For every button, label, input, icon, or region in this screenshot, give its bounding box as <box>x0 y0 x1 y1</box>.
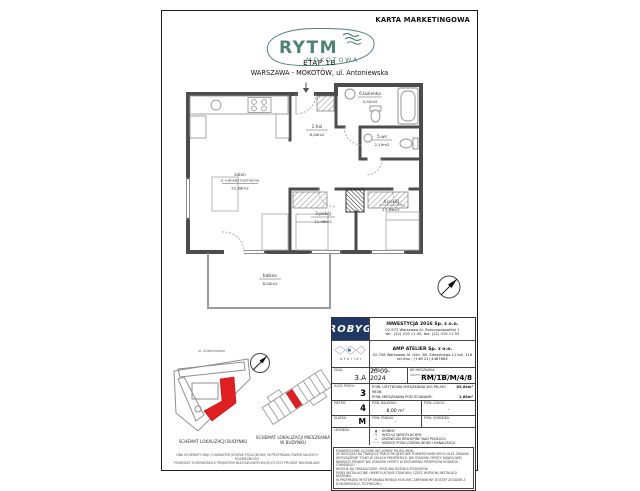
floor-plan: 1.hol 8,00m2 salon 2.+aneks kuchenny 22,… <box>170 82 468 314</box>
svg-text:22,68m2: 22,68m2 <box>231 186 249 191</box>
label-hol: 1.hol <box>312 124 323 130</box>
apartment-location-schematic <box>260 361 334 433</box>
door-swings <box>222 94 410 252</box>
apartment-number: RM/1B/M/4/8 <box>421 373 472 382</box>
location-label: WARSZAWA - MOKOTÓW, ul. Antoniewska <box>162 69 477 77</box>
entrance-arrow-icon <box>303 83 309 94</box>
page: { "header": { "doc_type": "KARTA MARKETI… <box>0 0 640 480</box>
robyg-logo: ROBYG <box>332 318 370 340</box>
etap-label: ETAP 1B <box>162 59 477 67</box>
ogrodek-cell: POW. OGRÓDKA: - <box>422 416 475 427</box>
klatka-cell: KLATKA: M <box>332 416 370 427</box>
installation-shaft <box>346 189 364 212</box>
data-cell: DATA: 20-09-2024 <box>370 368 408 383</box>
developer-info: INWESTYCJA 2016 Sp. z o.o. 02-972 Warsza… <box>370 318 475 340</box>
balkon-value: 8,00 m² <box>370 409 421 414</box>
label-balkon: balkon <box>263 273 278 279</box>
rooms-count: 3 <box>360 389 366 399</box>
svg-text:8,00m2: 8,00m2 <box>310 132 325 137</box>
atelier-logo-text: atelier <box>340 357 363 361</box>
label-pokoj-4: 4.pokój <box>383 198 399 205</box>
toilet-icon <box>371 110 380 122</box>
label-wc: 5.wc <box>377 134 388 140</box>
schematics-disclaimer: OBA SCHEMATY MAJĄ CHARAKTER JEDYNIE POGL… <box>165 453 329 465</box>
klatka-value: M <box>359 417 366 426</box>
building-location-schematic <box>168 353 258 435</box>
plan-north-arrow-icon <box>438 276 460 298</box>
connection-symbol-icon: ─◦─ <box>372 441 380 445</box>
info-table: ROBYG INWESTYCJA 2016 Sp. z o.o. 02-972 … <box>331 317 476 491</box>
data-value: 20-09-2024 <box>370 368 404 382</box>
taras-cell: POW. TARASU: - <box>370 416 422 427</box>
floor-value: 4 <box>360 404 366 414</box>
faza-cell: FAZA: 3.A <box>332 368 370 383</box>
loggia-cell: POW. LOGGII: - <box>422 401 475 415</box>
marketing-card-sheet: KARTA MARKETINGOWA RYTM MOKOTOWA ETAP 1B… <box>161 10 478 471</box>
logo-wave-icon <box>343 34 361 45</box>
svg-text:2,19m2: 2,19m2 <box>375 142 390 147</box>
sink-icon <box>211 100 221 110</box>
svg-text:11,96m2: 11,96m2 <box>314 219 332 224</box>
doc-type-title: KARTA MARKETINGOWA <box>375 16 470 24</box>
legend-cell: ▮KOMINY →·WYCIĄG WENTYLACYJNY ▫DRZWICZKI… <box>370 428 475 445</box>
legend-label-cell: LEGENDA: <box>332 428 370 445</box>
architect-info: AMP ATELIER Sp. z o.o. 02-758 Warszawa A… <box>370 341 475 367</box>
stove-icon <box>248 98 271 113</box>
washbasin-icon <box>345 89 355 99</box>
building-schematic-caption: SCHEMAT LOKALIZACJI BUDYNKU <box>162 439 264 444</box>
bed-room4-icon <box>386 212 419 250</box>
wc-fixtures <box>364 134 418 149</box>
label-lazienka: 6.łazienka <box>359 91 381 97</box>
areas-cell: POW. UŻYTKOWA MIESZKANIA WG PN-ISO 9836:… <box>370 384 475 400</box>
logo-text-rytm: RYTM <box>279 38 338 58</box>
faza-value: 3.A <box>355 374 366 382</box>
svg-text:4,92m2: 4,92m2 <box>363 99 378 104</box>
pietro-cell: PIĘTRO: 4 <box>332 401 370 415</box>
ilosc-pokoi-cell: ILOŚĆ POKOI: 3 <box>332 384 370 400</box>
wc-toilet-icon <box>400 139 412 148</box>
fridge-icon <box>190 116 206 138</box>
bathroom-fixtures <box>345 88 418 124</box>
sofa-icon <box>262 214 288 250</box>
wc-basin-icon <box>364 134 372 142</box>
atelier-logo: atelier <box>332 341 370 367</box>
table-footnotes: POWIERZCHNIE LICZONE WG NORMY PN-ISO 983… <box>333 447 474 489</box>
kitchen-counter <box>190 96 288 138</box>
apartment-schematic-caption: SCHEMAT LOKALIZACJI MIESZKANIA W BUDYNKU <box>254 435 332 446</box>
label-pokoj-3: 3.pokój <box>315 210 331 217</box>
svg-text:13,69m2: 13,69m2 <box>382 207 400 212</box>
svg-text:8,00m2: 8,00m2 <box>263 281 278 286</box>
nr-mieszkania-cell: NR MIESZKANIA INWESTYCYJNY/BUDOWLANY RM/… <box>408 368 475 383</box>
wc-toilet-tank-icon <box>413 138 418 149</box>
svg-text:2.+aneks kuchenny: 2.+aneks kuchenny <box>221 178 260 183</box>
balkon-cell: POW. BALKONU: 8,00 m² <box>370 401 422 415</box>
